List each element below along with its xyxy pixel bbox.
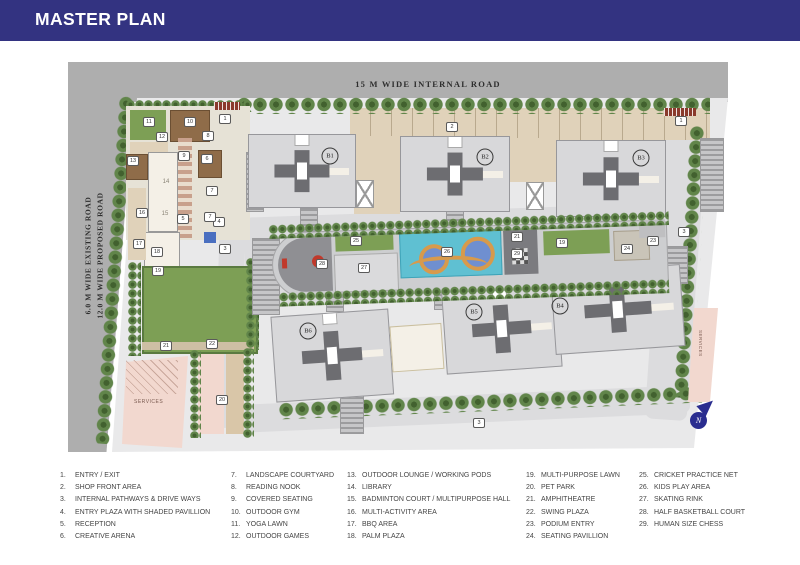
plan-marker-11: 11 (143, 117, 155, 127)
central-plaza (389, 323, 444, 373)
legend-item-number: 5. (60, 519, 75, 531)
tree-column (128, 262, 141, 356)
legend-item: 19.MULTI-PURPOSE LAWN (526, 470, 620, 482)
entry-gate-sign (664, 108, 696, 116)
multi-activity-area (128, 188, 146, 260)
legend-item: 12.OUTDOOR GAMES (231, 531, 334, 543)
building-core-slot (606, 170, 616, 187)
plan-marker-2: 2 (446, 122, 458, 132)
building-strip (630, 176, 658, 183)
legend-item-label: CRICKET PRACTICE NET (654, 470, 738, 482)
plan-marker-1: 1 (675, 116, 687, 126)
building-strip (321, 168, 349, 175)
legend-item-label: OUTDOOR GYM (246, 507, 300, 519)
legend-item-label: PALM PLAZA (362, 531, 405, 543)
building-notch (604, 141, 619, 152)
plan-marker-14: 14 (161, 178, 171, 186)
legend-item-number: 26. (639, 482, 654, 494)
plan-marker-16: 16 (136, 208, 148, 218)
building-label-b2: B2 (477, 149, 494, 166)
plan-marker-20: 20 (216, 395, 228, 405)
legend-item-label: BBQ AREA (362, 519, 397, 531)
legend-item-label: YOGA LAWN (246, 519, 288, 531)
master-plan-page: MASTER PLAN 15 M WIDE INTERNAL ROAD 6.0 … (0, 0, 800, 565)
legend-item: 6.CREATIVE ARENA (60, 531, 210, 543)
legend-item-number: 14. (347, 482, 362, 494)
water-feature (204, 232, 216, 243)
legend-item: 29.HUMAN SIZE CHESS (639, 519, 745, 531)
building-core-slot (297, 163, 307, 180)
legend-item: 2.SHOP FRONT AREA (60, 482, 210, 494)
legend-item-label: ENTRY / EXIT (75, 470, 120, 482)
legend-column: 7.LANDSCAPE COURTYARD8.READING NOOK9.COV… (231, 470, 334, 543)
legend-item-label: COVERED SEATING (246, 494, 313, 506)
legend-item-number: 21. (526, 494, 541, 506)
tree-column (243, 348, 254, 438)
legend-item: 17.BBQ AREA (347, 519, 510, 531)
building-strip (474, 171, 502, 178)
legend-item-number: 4. (60, 507, 75, 519)
plan-marker-29: 29 (511, 249, 523, 259)
legend-item-number: 24. (526, 531, 541, 543)
plan-marker-17: 17 (133, 239, 145, 249)
plan-marker-28: 28 (316, 259, 328, 269)
legend-item-number: 3. (60, 494, 75, 506)
building-notch (448, 137, 463, 148)
building-notch (322, 313, 338, 325)
legend: 1.ENTRY / EXIT2.SHOP FRONT AREA3.INTERNA… (0, 470, 800, 550)
legend-item: 9.COVERED SEATING (231, 494, 334, 506)
building-label-b3: B3 (633, 150, 650, 167)
plan-marker-25: 25 (350, 236, 362, 246)
services-hatch (126, 360, 178, 394)
top-road-label: 15 M WIDE INTERNAL ROAD (278, 79, 578, 89)
plan-marker-1: 1 (219, 114, 231, 124)
plan-marker-7: 7 (204, 212, 216, 222)
compass-north-icon: N (690, 412, 707, 429)
plan-marker-21: 21 (511, 232, 523, 242)
legend-item-label: OUTDOOR GAMES (246, 531, 309, 543)
legend-item-number: 29. (639, 519, 654, 531)
legend-item-label: SEATING PAVILLION (541, 531, 608, 543)
cricket-practice-net (335, 235, 393, 252)
building-strip (353, 349, 384, 358)
legend-item-number: 2. (60, 482, 75, 494)
legend-item-number: 18. (347, 531, 362, 543)
plan-marker-21: 21 (160, 341, 172, 351)
building-b2 (400, 136, 510, 212)
entry-gate-sign (214, 102, 240, 110)
legend-item-number: 1. (60, 470, 75, 482)
plan-marker-27: 27 (358, 263, 370, 273)
x-connector (356, 180, 374, 208)
legend-item: 5.RECEPTION (60, 519, 210, 531)
legend-item: 8.READING NOOK (231, 482, 334, 494)
legend-item-number: 7. (231, 470, 246, 482)
legend-item-number: 15. (347, 494, 362, 506)
legend-column: 1.ENTRY / EXIT2.SHOP FRONT AREA3.INTERNA… (60, 470, 210, 543)
building-core-slot (612, 301, 623, 319)
legend-item-label: AMPHITHEATRE (541, 494, 595, 506)
legend-item-label: MULTI-PURPOSE LAWN (541, 470, 620, 482)
legend-item: 22.SWING PLAZA (526, 507, 620, 519)
legend-item-label: SHOP FRONT AREA (75, 482, 141, 494)
legend-item-number: 28. (639, 507, 654, 519)
legend-item-label: INTERNAL PATHWAYS & DRIVE WAYS (75, 494, 201, 506)
pet-park-path (226, 354, 244, 434)
legend-item-label: SWING PLAZA (541, 507, 589, 519)
legend-item: 18.PALM PLAZA (347, 531, 510, 543)
x-connector (526, 182, 544, 210)
services-label-left: SERVICES (134, 399, 163, 405)
left-road-label-existing: 6.0 M WIDE EXISTING ROAD (84, 151, 95, 361)
legend-item-number: 27. (639, 494, 654, 506)
legend-item-label: LANDSCAPE COURTYARD (246, 470, 334, 482)
legend-item-label: KIDS PLAY AREA (654, 482, 710, 494)
multi-purpose-lawn (142, 266, 258, 354)
building-b1 (248, 134, 356, 208)
legend-item-label: CREATIVE ARENA (75, 531, 135, 543)
legend-item-label: HUMAN SIZE CHESS (654, 519, 723, 531)
legend-item-label: HALF BASKETBALL COURT (654, 507, 745, 519)
legend-item: 20.PET PARK (526, 482, 620, 494)
basketball-mark (282, 258, 287, 268)
plan-marker-12: 12 (156, 132, 168, 142)
plan-marker-26: 26 (441, 247, 453, 257)
plan-marker-24: 24 (621, 244, 633, 254)
legend-item-number: 19. (526, 470, 541, 482)
legend-item-number: 12. (231, 531, 246, 543)
library-building (148, 152, 178, 232)
legend-item: 15.BADMINTON COURT / MULTIPURPOSE HALL (347, 494, 510, 506)
legend-item: 11.YOGA LAWN (231, 519, 334, 531)
legend-item: 7.LANDSCAPE COURTYARD (231, 470, 334, 482)
legend-item: 14.LIBRARY (347, 482, 510, 494)
building-b6 (270, 309, 394, 403)
tree-column (190, 350, 201, 438)
plan-marker-13: 13 (127, 156, 139, 166)
legend-item: 26.KIDS PLAY AREA (639, 482, 745, 494)
legend-item: 1.ENTRY / EXIT (60, 470, 210, 482)
legend-item: 10.OUTDOOR GYM (231, 507, 334, 519)
building-label-b1: B1 (322, 148, 339, 165)
legend-item-number: 9. (231, 494, 246, 506)
podium-lawn (543, 229, 610, 255)
building-label-b6: B6 (300, 323, 317, 340)
legend-item-label: READING NOOK (246, 482, 300, 494)
plan-marker-19: 19 (152, 266, 164, 276)
legend-item-number: 8. (231, 482, 246, 494)
plan-marker-3: 3 (473, 418, 485, 428)
legend-item-label: OUTDOOR LOUNGE / WORKING PODS (362, 470, 491, 482)
plan-marker-3: 3 (219, 244, 231, 254)
legend-item-number: 13. (347, 470, 362, 482)
legend-item: 21.AMPHITHEATRE (526, 494, 620, 506)
building-strip (641, 302, 675, 311)
legend-item: 4.ENTRY PLAZA WITH SHADED PAVILLION (60, 507, 210, 519)
legend-item: 24.SEATING PAVILLION (526, 531, 620, 543)
plan-marker-5: 5 (177, 214, 189, 224)
legend-column: 25.CRICKET PRACTICE NET26.KIDS PLAY AREA… (639, 470, 745, 531)
building-strip (522, 322, 552, 331)
building-b3 (556, 140, 666, 217)
plan-marker-18: 18 (151, 247, 163, 257)
legend-item-number: 11. (231, 519, 246, 531)
plan-marker-19: 19 (556, 238, 568, 248)
legend-item-label: PODIUM ENTRY (541, 519, 595, 531)
podium-strip (271, 219, 669, 299)
legend-item-label: RECEPTION (75, 519, 116, 531)
legend-item: 13.OUTDOOR LOUNGE / WORKING PODS (347, 470, 510, 482)
lawn-path (142, 342, 254, 350)
legend-column: 13.OUTDOOR LOUNGE / WORKING PODS14.LIBRA… (347, 470, 510, 543)
pet-park-area (198, 354, 224, 434)
plan-marker-9: 9 (178, 151, 190, 161)
plan-marker-23: 23 (647, 236, 659, 246)
legend-item-number: 10. (231, 507, 246, 519)
legend-item-number: 22. (526, 507, 541, 519)
plan-marker-22: 22 (206, 339, 218, 349)
legend-item-number: 25. (639, 470, 654, 482)
legend-item: 23.PODIUM ENTRY (526, 519, 620, 531)
plan-marker-15: 15 (160, 210, 170, 218)
legend-item-number: 20. (526, 482, 541, 494)
legend-item-label: BADMINTON COURT / MULTIPURPOSE HALL (362, 494, 510, 506)
legend-item-label: PET PARK (541, 482, 575, 494)
legend-item-number: 6. (60, 531, 75, 543)
building-notch (295, 135, 310, 146)
tree-row (236, 97, 710, 114)
plan-marker-10: 10 (184, 117, 196, 127)
legend-item-number: 16. (347, 507, 362, 519)
legend-item-label: MULTI-ACTIVITY AREA (362, 507, 437, 519)
legend-item-label: SKATING RINK (654, 494, 703, 506)
parking-stalls (700, 138, 724, 212)
legend-item-label: LIBRARY (362, 482, 392, 494)
building-core-slot (450, 166, 460, 183)
building-core-slot (496, 320, 507, 338)
plan-marker-6: 6 (201, 154, 213, 164)
legend-item: 3.INTERNAL PATHWAYS & DRIVE WAYS (60, 494, 210, 506)
legend-item: 27.SKATING RINK (639, 494, 745, 506)
legend-column: 19.MULTI-PURPOSE LAWN20.PET PARK21.AMPHI… (526, 470, 620, 543)
legend-item: 25.CRICKET PRACTICE NET (639, 470, 745, 482)
plan-marker-3: 3 (678, 227, 690, 237)
legend-item-number: 17. (347, 519, 362, 531)
building-label-b5: B5 (466, 304, 483, 321)
legend-item: 16.MULTI-ACTIVITY AREA (347, 507, 510, 519)
legend-item-label: ENTRY PLAZA WITH SHADED PAVILLION (75, 507, 210, 519)
plan-marker-7: 7 (206, 186, 218, 196)
plan-marker-8: 8 (202, 131, 214, 141)
building-label-b4: B4 (552, 298, 569, 315)
building-core-slot (327, 347, 338, 365)
legend-item-number: 23. (526, 519, 541, 531)
legend-item: 28.HALF BASKETBALL COURT (639, 507, 745, 519)
tan-path (508, 138, 556, 182)
